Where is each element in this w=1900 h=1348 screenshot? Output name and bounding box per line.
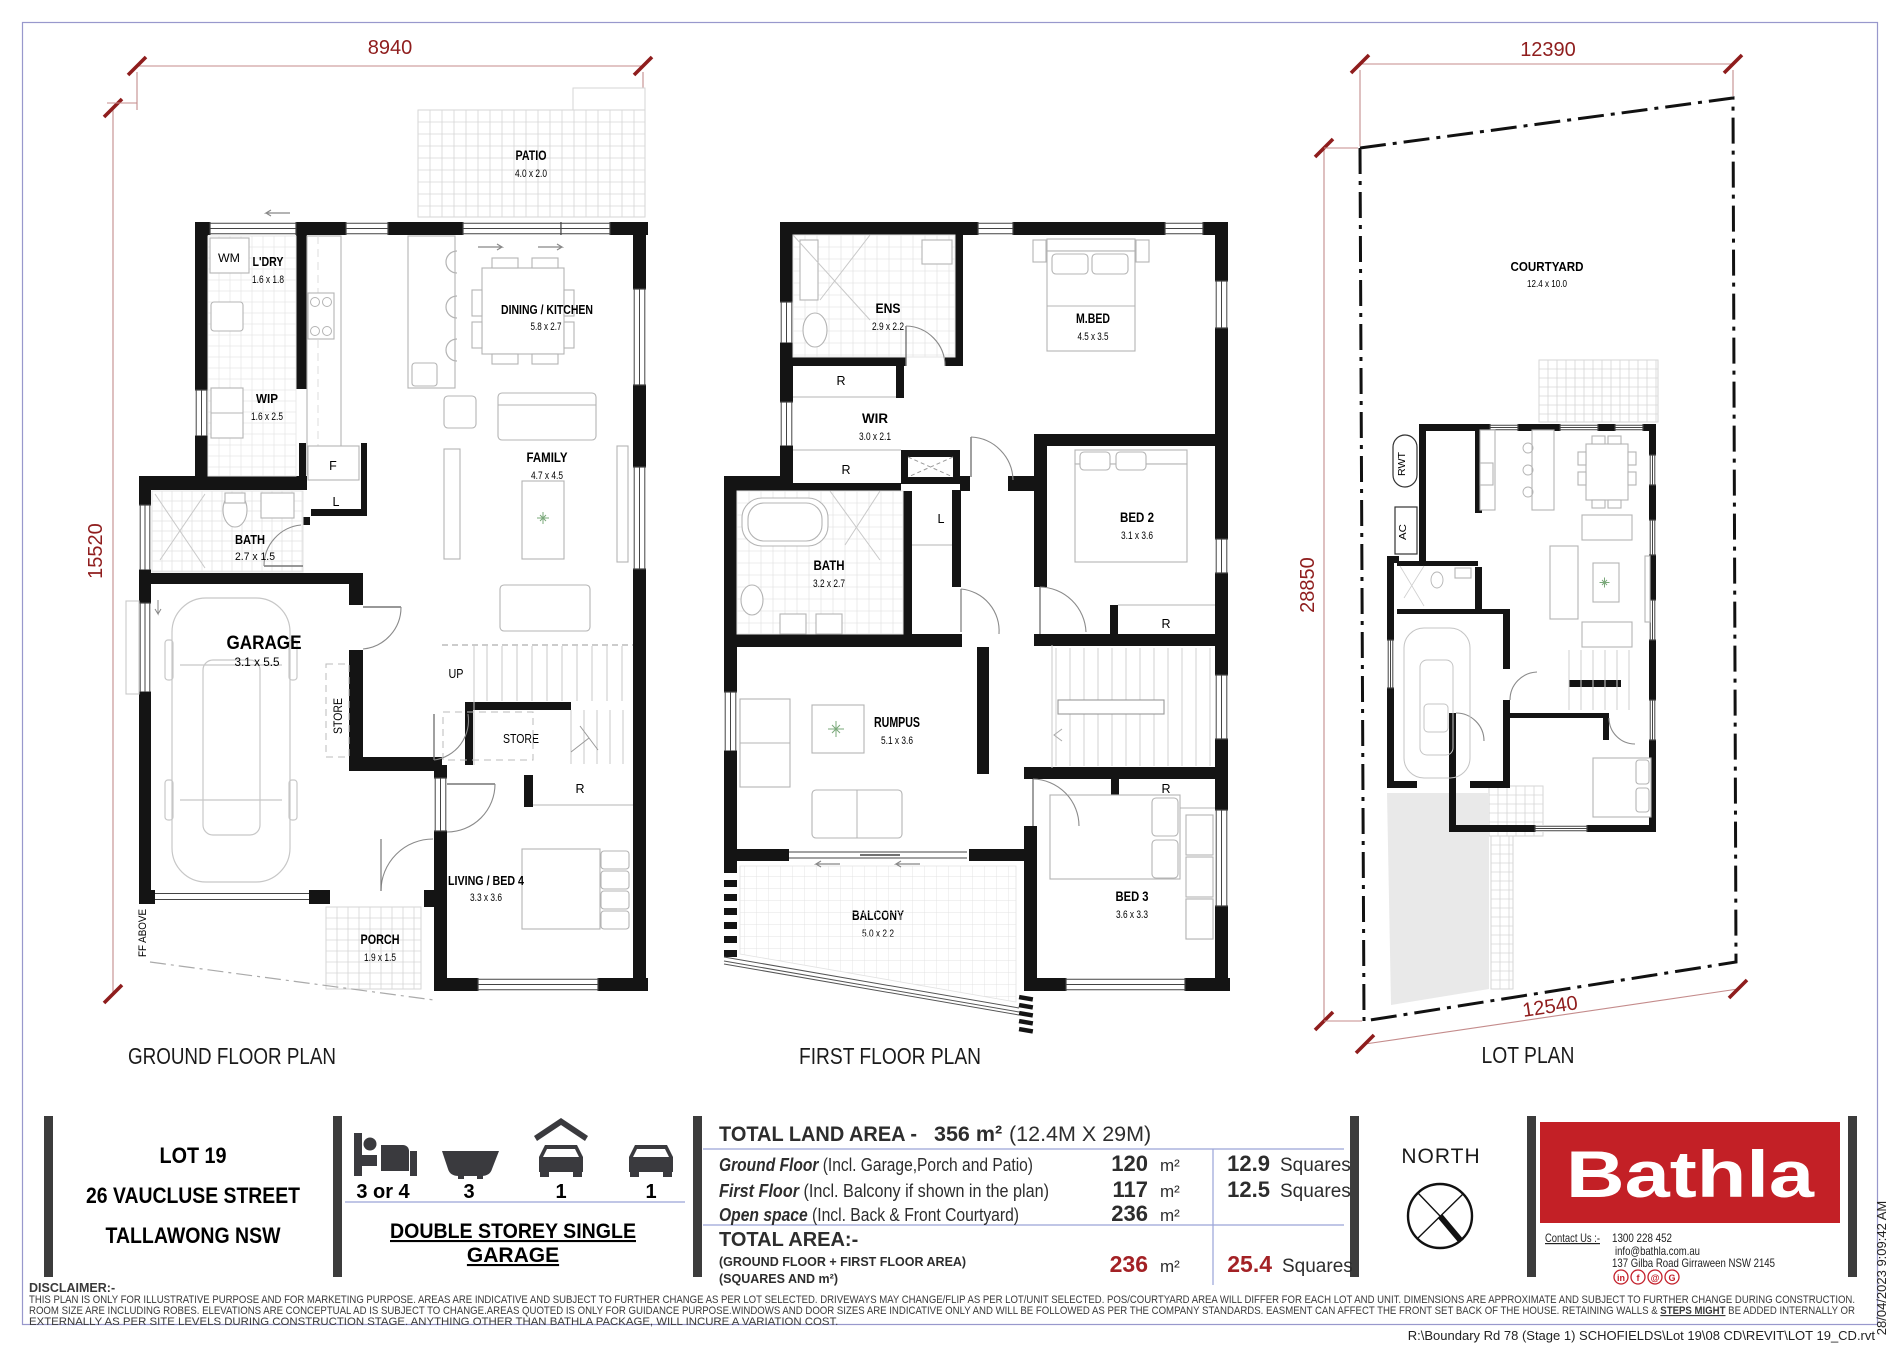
svg-text:in: in <box>1617 1273 1625 1283</box>
svg-text:m²: m² <box>1160 1206 1180 1225</box>
svg-text:3.1 x 3.6: 3.1 x 3.6 <box>1121 530 1153 542</box>
svg-text:STORE: STORE <box>331 698 345 734</box>
svg-text:BED 2: BED 2 <box>1120 509 1154 525</box>
svg-text:12.4 x 10.0: 12.4 x 10.0 <box>1527 279 1567 290</box>
svg-text:R:\Boundary Rd 78 (Stage 1) SC: R:\Boundary Rd 78 (Stage 1) SCHOFIELDS\L… <box>1408 1328 1876 1343</box>
svg-text:12.9: 12.9 <box>1227 1151 1270 1176</box>
svg-text:STORE: STORE <box>503 732 539 746</box>
svg-text:2.7 x 1.5: 2.7 x 1.5 <box>235 551 275 563</box>
svg-text:FF ABOVE: FF ABOVE <box>137 909 149 957</box>
svg-text:28/04/2023 9:09:42 AM: 28/04/2023 9:09:42 AM <box>1874 1201 1889 1335</box>
svg-text:26 VAUCLUSE STREET: 26 VAUCLUSE STREET <box>86 1183 300 1208</box>
svg-text:1.6 x 1.8: 1.6 x 1.8 <box>252 274 284 286</box>
svg-text:4.7 x 4.5: 4.7 x 4.5 <box>531 470 563 482</box>
svg-text:TOTAL LAND AREA -: TOTAL LAND AREA - <box>719 1122 917 1146</box>
svg-text:117: 117 <box>1113 1177 1149 1202</box>
svg-text:1.9 x 1.5: 1.9 x 1.5 <box>364 952 396 964</box>
svg-text:ENS: ENS <box>876 301 901 316</box>
svg-text:L'DRY: L'DRY <box>253 254 284 269</box>
svg-text:GARAGE: GARAGE <box>227 633 302 654</box>
svg-text:m²: m² <box>1160 1182 1180 1201</box>
svg-text:F: F <box>329 459 337 473</box>
svg-text:R: R <box>575 782 584 796</box>
svg-text:R: R <box>841 463 850 477</box>
svg-text:3.6 x 3.3: 3.6 x 3.3 <box>1116 909 1148 921</box>
svg-text:(12.4M X 29M): (12.4M X 29M) <box>1009 1122 1151 1146</box>
svg-text:1: 1 <box>645 1181 656 1203</box>
svg-text:Squares: Squares <box>1282 1256 1353 1277</box>
svg-text:FIRST FLOOR PLAN: FIRST FLOOR PLAN <box>799 1043 981 1069</box>
svg-text:8940: 8940 <box>368 37 413 59</box>
svg-text:UP: UP <box>449 667 464 681</box>
svg-text:LOT PLAN: LOT PLAN <box>1482 1042 1575 1068</box>
svg-text:TALLAWONG NSW: TALLAWONG NSW <box>106 1223 281 1248</box>
svg-text:GROUND FLOOR PLAN: GROUND FLOOR PLAN <box>128 1043 336 1069</box>
svg-text:RUMPUS: RUMPUS <box>874 714 920 731</box>
svg-text:PATIO: PATIO <box>516 148 547 163</box>
svg-text:5.1 x 3.6: 5.1 x 3.6 <box>881 735 913 747</box>
svg-text:L: L <box>333 495 340 509</box>
svg-text:3.0 x 2.1: 3.0 x 2.1 <box>859 431 891 443</box>
svg-text:15520: 15520 <box>85 523 107 579</box>
svg-text:1: 1 <box>555 1181 566 1203</box>
svg-text:Squares: Squares <box>1280 1181 1351 1202</box>
svg-text:WIP: WIP <box>256 391 278 406</box>
svg-text:BED 3: BED 3 <box>1116 888 1149 904</box>
svg-text:@: @ <box>1651 1273 1660 1283</box>
svg-text:BATH: BATH <box>814 558 845 573</box>
svg-text:120: 120 <box>1111 1151 1148 1176</box>
svg-text:Bathla: Bathla <box>1566 1137 1816 1211</box>
svg-text:3.3 x 3.6: 3.3 x 3.6 <box>470 892 502 904</box>
svg-text:356 m²: 356 m² <box>934 1122 1002 1146</box>
svg-text:DISCLAIMER:-: DISCLAIMER:- <box>29 1281 115 1295</box>
svg-text:COURTYARD: COURTYARD <box>1511 259 1584 274</box>
svg-text:25.4: 25.4 <box>1227 1251 1272 1277</box>
svg-text:FAMILY: FAMILY <box>527 450 568 465</box>
svg-text:m²: m² <box>1160 1156 1180 1175</box>
svg-text:R: R <box>1161 617 1170 631</box>
svg-text:m²: m² <box>1160 1257 1180 1276</box>
svg-text:(SQUARES AND m²): (SQUARES AND m²) <box>719 1272 838 1286</box>
svg-text:WM: WM <box>218 253 240 265</box>
svg-text:3.2 x 2.7: 3.2 x 2.7 <box>813 578 845 590</box>
svg-text:137 Gilba Road Girraween NSW 2: 137 Gilba Road Girraween NSW 2145 <box>1612 1256 1775 1270</box>
svg-text:12.5: 12.5 <box>1227 1177 1270 1202</box>
svg-text:12390: 12390 <box>1520 39 1576 61</box>
svg-text:R: R <box>1161 782 1170 796</box>
svg-text:5.8 x 2.7: 5.8 x 2.7 <box>531 321 562 333</box>
svg-text:M.BED: M.BED <box>1076 310 1110 326</box>
svg-text:DINING / KITCHEN: DINING / KITCHEN <box>501 302 593 317</box>
svg-text:1300 228 452: 1300 228 452 <box>1612 1231 1672 1245</box>
svg-text:236: 236 <box>1111 1201 1148 1226</box>
svg-text:4.0 x 2.0: 4.0 x 2.0 <box>515 168 547 180</box>
svg-text:Squares: Squares <box>1280 1155 1351 1176</box>
svg-text:BATH: BATH <box>235 532 265 547</box>
svg-text:TOTAL AREA:-: TOTAL AREA:- <box>719 1229 858 1251</box>
svg-text:Open space (Incl. Back & Front: Open space (Incl. Back & Front Courtyard… <box>719 1205 1019 1225</box>
svg-text:1.6 x 2.5: 1.6 x 2.5 <box>251 411 283 423</box>
svg-text:3: 3 <box>463 1181 474 1203</box>
svg-text:WIR: WIR <box>862 411 888 426</box>
svg-text:R: R <box>836 374 845 388</box>
svg-text:Ground Floor (Incl. Garage,Por: Ground Floor (Incl. Garage,Porch and Pat… <box>719 1155 1033 1175</box>
svg-text:3 or 4: 3 or 4 <box>356 1181 410 1203</box>
svg-text:3.1 x 5.5: 3.1 x 5.5 <box>235 655 280 669</box>
svg-text:2.9 x 2.2: 2.9 x 2.2 <box>872 321 904 333</box>
svg-text:236: 236 <box>1110 1251 1148 1277</box>
svg-text:NORTH: NORTH <box>1401 1145 1480 1168</box>
svg-text:DOUBLE STOREY SINGLE: DOUBLE STOREY SINGLE <box>390 1220 636 1243</box>
svg-text:28850: 28850 <box>1297 557 1319 613</box>
svg-text:(GROUND FLOOR + FIRST FLOOR AR: (GROUND FLOOR + FIRST FLOOR AREA) <box>719 1255 966 1269</box>
svg-text:PORCH: PORCH <box>361 931 400 947</box>
svg-text:LOT 19: LOT 19 <box>160 1143 227 1168</box>
svg-text:L: L <box>938 512 945 526</box>
svg-text:RWT: RWT <box>1396 451 1408 476</box>
svg-text:G: G <box>1668 1273 1675 1283</box>
svg-text:AC: AC <box>1397 524 1409 540</box>
svg-text:Contact Us :-: Contact Us :- <box>1545 1231 1600 1245</box>
svg-text:GARAGE: GARAGE <box>467 1244 559 1267</box>
svg-text:First Floor (Incl. Balcony if: First Floor (Incl. Balcony if shown in t… <box>719 1181 1049 1201</box>
svg-text:EXTERNALLY AS PER SITE LEVELS: EXTERNALLY AS PER SITE LEVELS DURING CON… <box>29 1316 838 1328</box>
svg-text:LIVING / BED 4: LIVING / BED 4 <box>448 873 525 888</box>
svg-text:4.5 x 3.5: 4.5 x 3.5 <box>1078 331 1109 343</box>
